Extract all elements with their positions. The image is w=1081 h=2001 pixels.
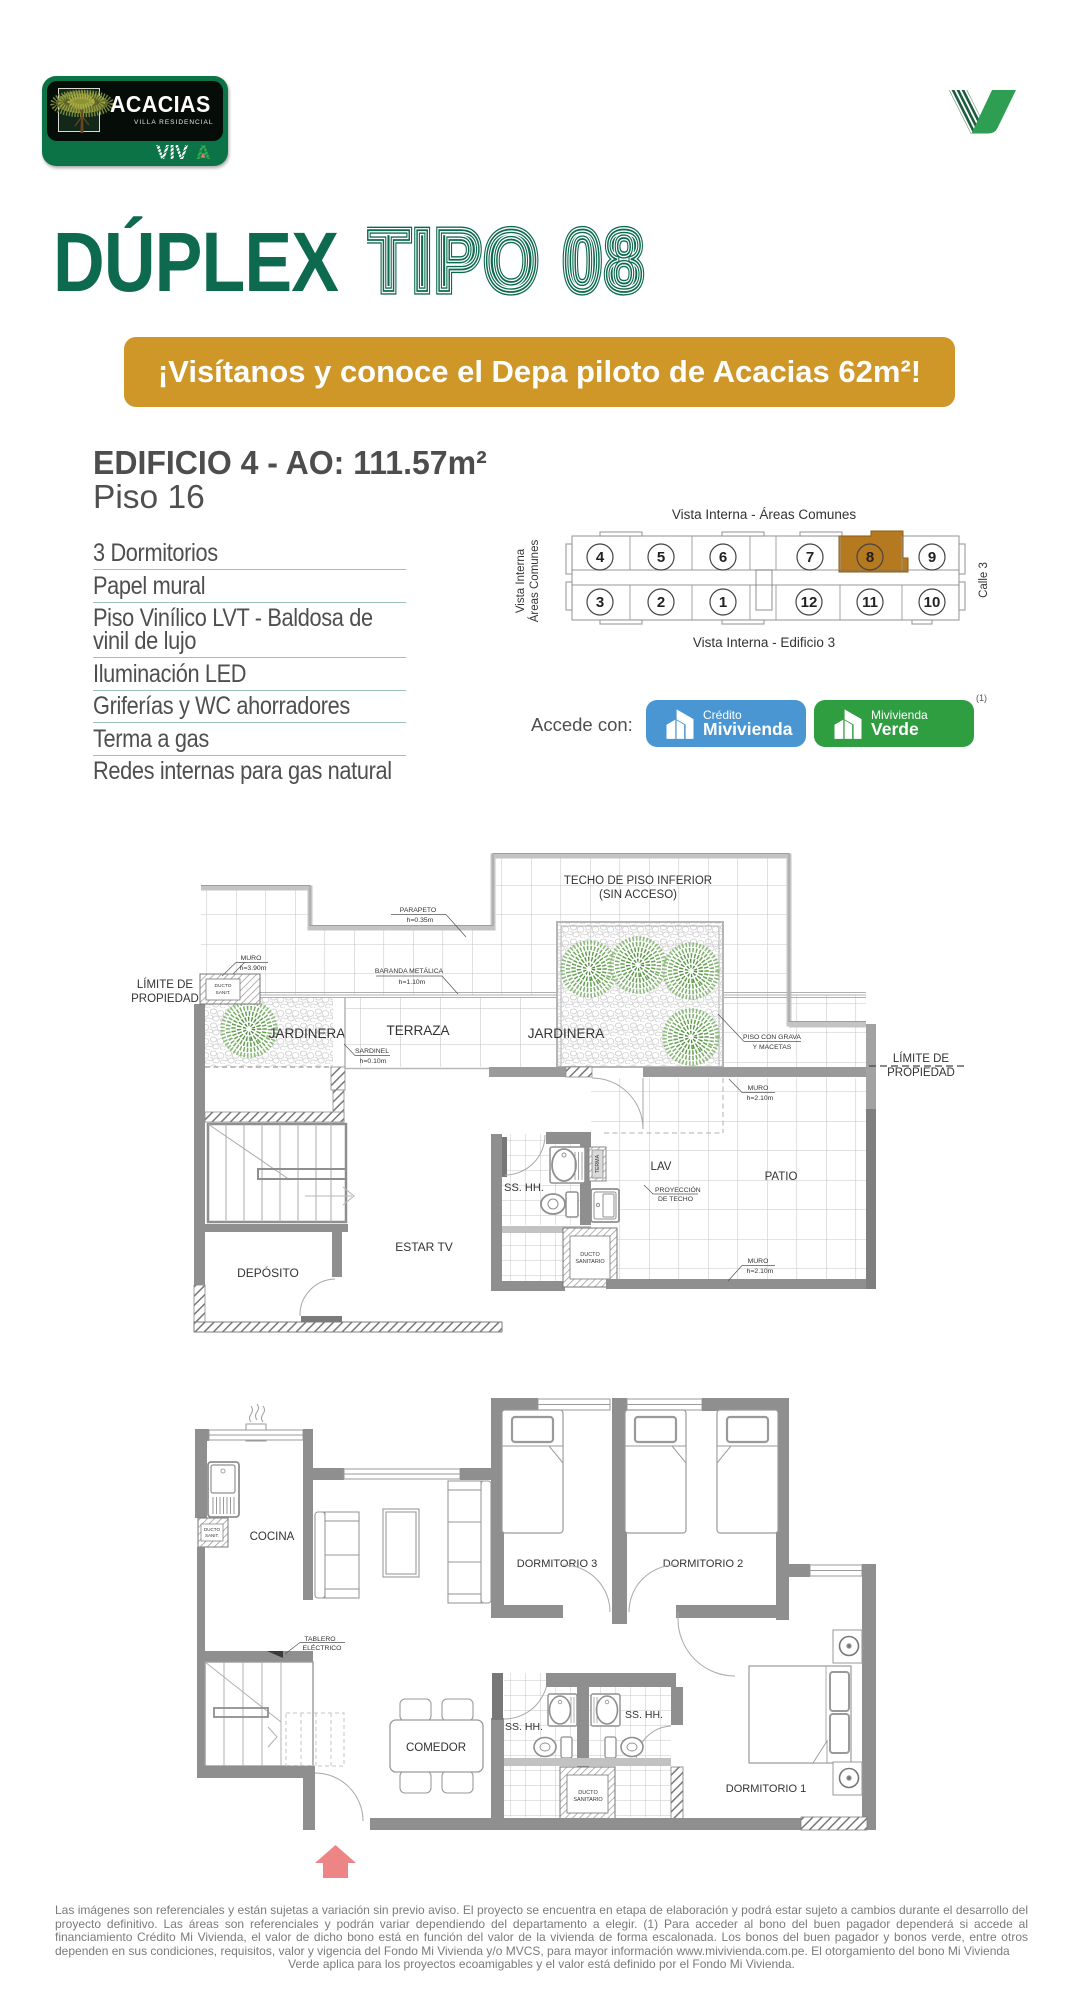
svg-text:6: 6 [719,549,727,566]
svg-text:PARAPETO: PARAPETO [400,907,436,914]
svg-text:h=2.10m: h=2.10m [747,1095,774,1102]
svg-text:PROPIEDAD: PROPIEDAD [131,993,199,1005]
svg-text:9: 9 [928,549,936,566]
svg-text:JARDINERA: JARDINERA [528,1026,605,1041]
svg-text:Calle 3: Calle 3 [978,562,990,598]
svg-text:DUCTO: DUCTO [215,983,232,989]
svg-text:PISO CON GRAVA: PISO CON GRAVA [743,1034,801,1041]
svg-text:4: 4 [596,549,605,566]
svg-text:MURO: MURO [241,955,262,962]
svg-text:DEPÓSITO: DEPÓSITO [237,1265,299,1280]
svg-text:COMEDOR: COMEDOR [406,1742,466,1754]
svg-text:Y MACETAS: Y MACETAS [753,1044,792,1051]
svg-text:SS. HH.: SS. HH. [504,1182,544,1194]
svg-text:DUCTO: DUCTO [580,1252,600,1258]
svg-text:Vista Interna - Edificio 3: Vista Interna - Edificio 3 [693,635,835,650]
svg-text:DORMITORIO 2: DORMITORIO 2 [663,1558,743,1570]
svg-text:VIV: VIV [156,142,189,164]
svg-text:5: 5 [657,549,665,566]
svg-text:ELÉCTRICO: ELÉCTRICO [303,1643,342,1652]
svg-text:TECHO DE PISO INFERIOR: TECHO DE PISO INFERIOR [564,875,712,887]
svg-text:h=1.10m: h=1.10m [399,979,426,986]
svg-text:TERRAZA: TERRAZA [386,1023,449,1038]
svg-text:SANITARIO: SANITARIO [573,1797,603,1803]
svg-text:Vista Interna: Vista Interna [515,548,527,613]
svg-text:BARANDA METÁLICA: BARANDA METÁLICA [375,966,444,975]
svg-text:h=2.10m: h=2.10m [747,1268,774,1275]
svg-text:A: A [196,142,210,164]
svg-text:JARDINERA: JARDINERA [269,1026,346,1041]
svg-text:10: 10 [924,594,941,611]
svg-text:LÍMITE DE: LÍMITE DE [137,978,194,991]
svg-text:7: 7 [806,549,814,566]
svg-text:DORMITORIO 3: DORMITORIO 3 [517,1558,597,1570]
svg-text:MURO: MURO [748,1085,769,1092]
svg-text:11: 11 [862,594,878,611]
svg-text:SANIT.: SANIT. [216,990,231,996]
svg-text:TABLERO: TABLERO [304,1636,335,1643]
svg-text:3: 3 [596,594,604,611]
svg-text:SANIT.: SANIT. [205,1533,219,1538]
svg-text:TIPO 08: TIPO 08 [367,218,646,302]
svg-text:SS. HH.: SS. HH. [505,1721,543,1733]
svg-text:8: 8 [866,549,874,566]
svg-text:SARDINEL: SARDINEL [355,1048,389,1055]
svg-text:DUCTO: DUCTO [204,1527,220,1532]
svg-text:Áreas Comunes: Áreas Comunes [528,540,541,623]
svg-text:SANITARIO: SANITARIO [575,1259,605,1265]
svg-text:PATIO: PATIO [765,1171,798,1183]
svg-text:(SIN ACCESO): (SIN ACCESO) [599,889,677,901]
svg-text:h=0.35m: h=0.35m [407,917,434,924]
svg-text:LAV: LAV [651,1161,672,1173]
svg-text:MURO: MURO [748,1258,769,1265]
svg-text:LÍMITE DE: LÍMITE DE [893,1052,950,1065]
svg-text:h=0.10m: h=0.10m [360,1058,387,1065]
svg-text:DE TECHO: DE TECHO [658,1196,693,1203]
svg-text:h=3.90m: h=3.90m [240,965,267,972]
svg-text:Vista Interna - Áreas Comunes: Vista Interna - Áreas Comunes [672,507,857,522]
svg-text:2: 2 [657,594,665,611]
svg-text:TERMA: TERMA [595,1154,601,1173]
svg-text:ESTAR TV: ESTAR TV [395,1240,453,1254]
svg-text:DORMITORIO 1: DORMITORIO 1 [726,1783,806,1795]
svg-text:DUCTO: DUCTO [578,1790,598,1796]
svg-text:PROPIEDAD: PROPIEDAD [887,1067,955,1079]
svg-text:PROYECCIÓN: PROYECCIÓN [655,1185,701,1194]
svg-text:1: 1 [719,594,727,611]
svg-text:COCINA: COCINA [250,1531,295,1543]
svg-text:SS. HH.: SS. HH. [625,1709,663,1721]
svg-text:12: 12 [801,594,818,611]
